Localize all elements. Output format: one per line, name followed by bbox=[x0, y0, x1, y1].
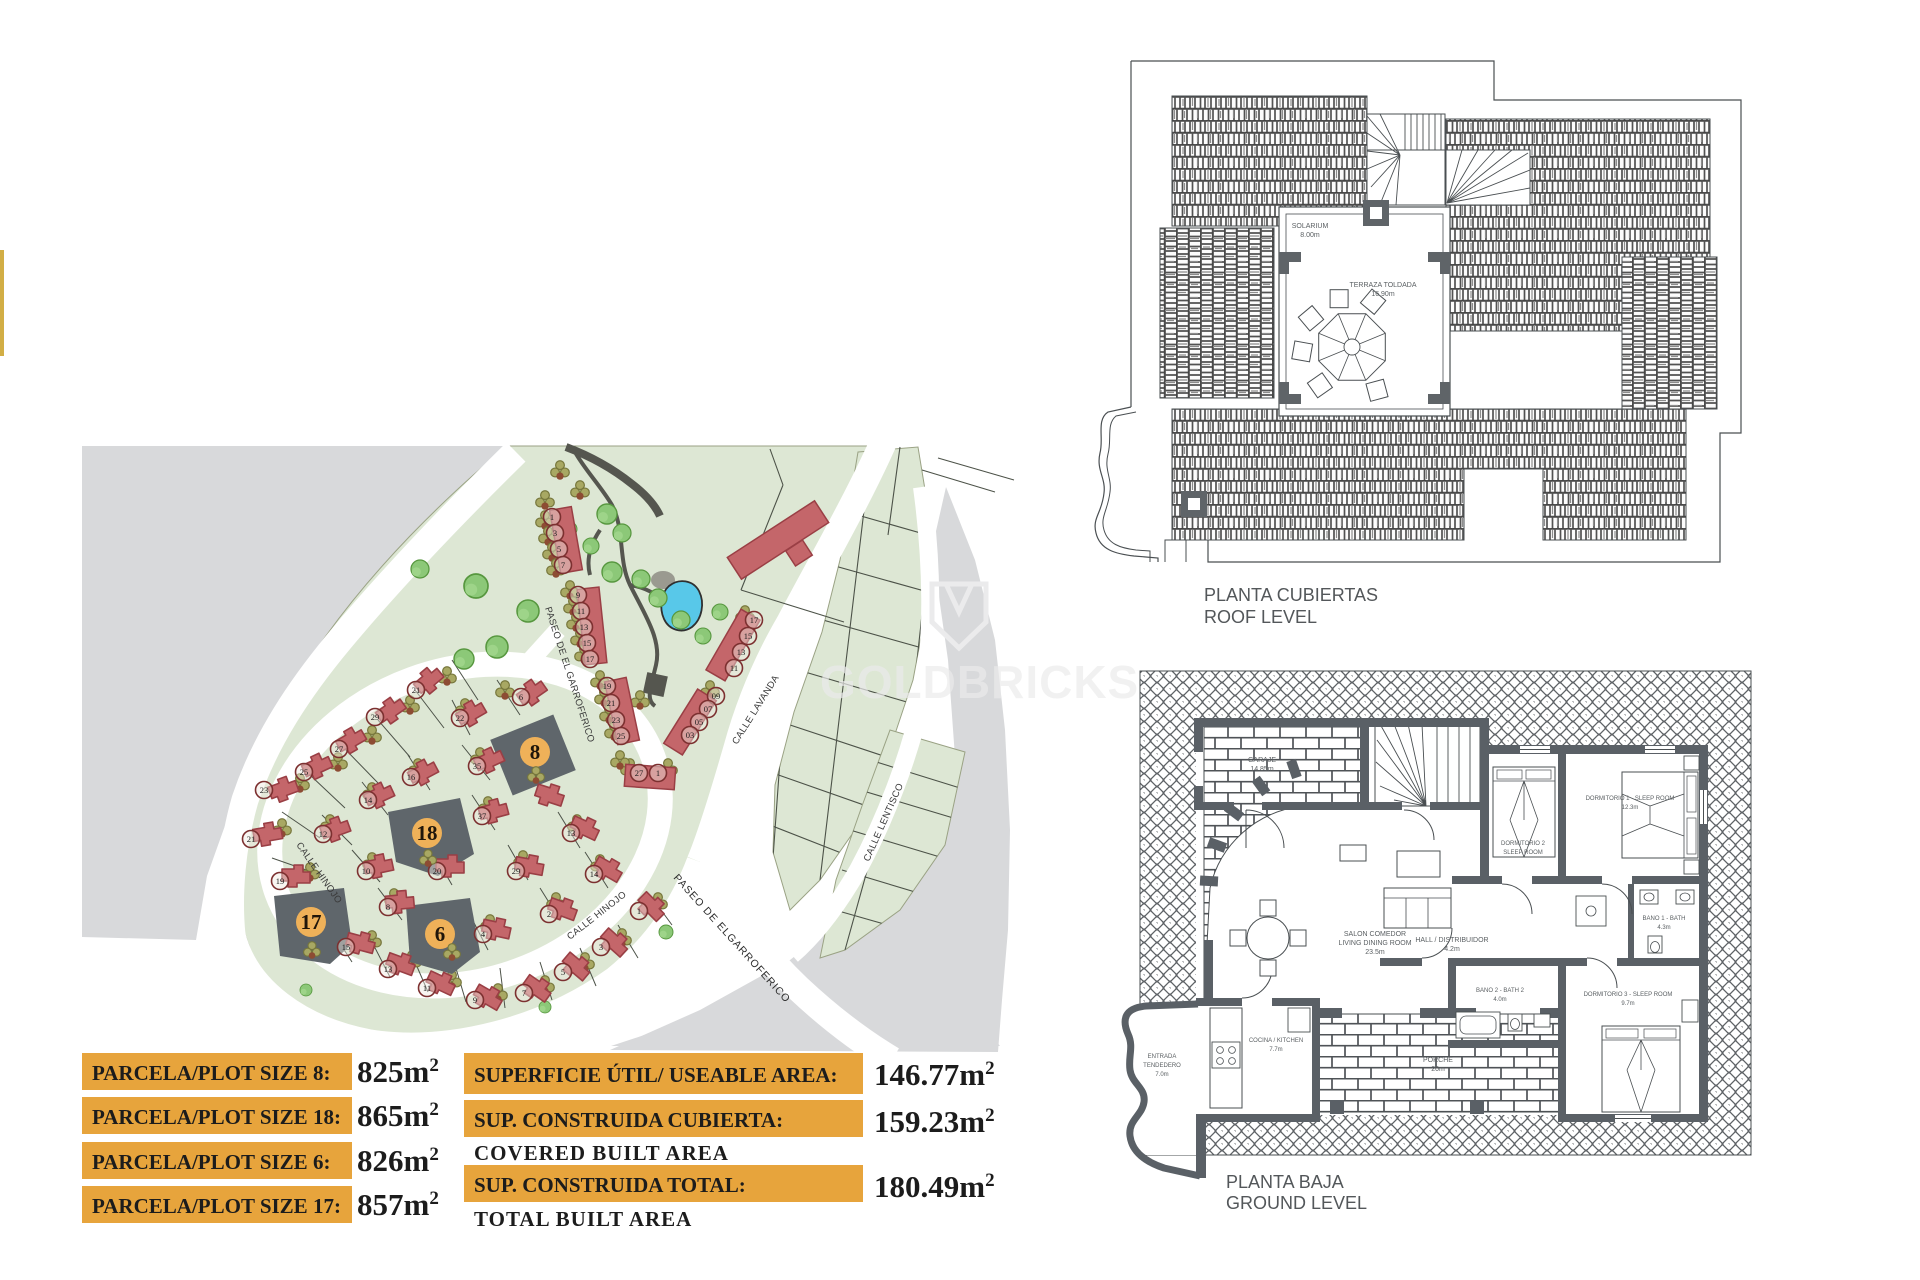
svg-text:3: 3 bbox=[553, 528, 557, 538]
svg-text:PLANTA BAJA: PLANTA BAJA bbox=[1226, 1172, 1344, 1192]
svg-text:5: 5 bbox=[557, 544, 561, 554]
svg-text:14.85m: 14.85m bbox=[1250, 766, 1274, 773]
svg-text:09: 09 bbox=[712, 691, 721, 701]
svg-text:8: 8 bbox=[386, 902, 390, 912]
svg-text:25: 25 bbox=[617, 731, 626, 741]
svg-text:35: 35 bbox=[473, 761, 482, 771]
svg-text:SALON COMEDOR: SALON COMEDOR bbox=[1344, 931, 1406, 938]
svg-text:10: 10 bbox=[362, 866, 371, 876]
svg-text:ROOF LEVEL: ROOF LEVEL bbox=[1204, 607, 1317, 627]
svg-text:11: 11 bbox=[730, 663, 738, 673]
svg-text:GARAJE: GARAJE bbox=[1248, 757, 1276, 764]
svg-text:13: 13 bbox=[580, 622, 589, 632]
svg-text:21: 21 bbox=[607, 698, 616, 708]
svg-text:7: 7 bbox=[522, 988, 526, 998]
svg-text:PARCELA/PLOT SIZE 6:: PARCELA/PLOT SIZE 6: bbox=[92, 1150, 330, 1174]
svg-text:11: 11 bbox=[577, 606, 585, 616]
svg-text:PLANTA CUBIERTAS: PLANTA CUBIERTAS bbox=[1204, 585, 1378, 605]
svg-text:826m2: 826m2 bbox=[357, 1143, 439, 1178]
svg-text:12: 12 bbox=[319, 829, 328, 839]
svg-text:7: 7 bbox=[561, 560, 565, 570]
svg-text:14: 14 bbox=[590, 869, 599, 879]
svg-text:13: 13 bbox=[567, 828, 576, 838]
svg-text:17: 17 bbox=[586, 654, 595, 664]
svg-text:8.00m: 8.00m bbox=[1300, 232, 1320, 239]
svg-text:1: 1 bbox=[637, 906, 641, 916]
svg-text:27: 27 bbox=[635, 768, 644, 778]
svg-text:4.0m: 4.0m bbox=[1493, 997, 1506, 1003]
svg-text:23: 23 bbox=[612, 715, 621, 725]
svg-text:19: 19 bbox=[603, 681, 612, 691]
svg-text:20m: 20m bbox=[1431, 1066, 1445, 1073]
svg-text:22: 22 bbox=[456, 713, 465, 723]
svg-text:37: 37 bbox=[478, 811, 487, 821]
svg-text:180.49m2: 180.49m2 bbox=[874, 1169, 995, 1204]
svg-text:23.5m: 23.5m bbox=[1365, 949, 1385, 956]
svg-text:11: 11 bbox=[423, 983, 431, 993]
svg-text:DORMITORIO 3 - SLEEP ROOM: DORMITORIO 3 - SLEEP ROOM bbox=[1584, 992, 1673, 998]
svg-text:SOLARIUM: SOLARIUM bbox=[1292, 223, 1329, 230]
svg-text:18: 18 bbox=[417, 821, 438, 845]
svg-text:TENDEDERO: TENDEDERO bbox=[1143, 1063, 1181, 1069]
svg-text:29: 29 bbox=[512, 866, 521, 876]
svg-text:8: 8 bbox=[530, 740, 541, 764]
svg-text:20: 20 bbox=[433, 866, 442, 876]
svg-text:25: 25 bbox=[300, 767, 309, 777]
svg-text:857m2: 857m2 bbox=[357, 1187, 439, 1222]
svg-text:159.23m2: 159.23m2 bbox=[874, 1104, 995, 1139]
svg-text:14: 14 bbox=[364, 795, 373, 805]
svg-text:12.3m: 12.3m bbox=[1622, 805, 1639, 811]
svg-text:ENTRADA: ENTRADA bbox=[1148, 1054, 1177, 1060]
svg-text:1: 1 bbox=[550, 512, 554, 522]
svg-text:15: 15 bbox=[583, 638, 592, 648]
svg-text:7.0m: 7.0m bbox=[1155, 1072, 1168, 1078]
svg-text:6: 6 bbox=[519, 692, 523, 702]
svg-text:16: 16 bbox=[407, 772, 416, 782]
svg-text:LIVING DINING ROOM: LIVING DINING ROOM bbox=[1338, 940, 1411, 947]
svg-text:865m2: 865m2 bbox=[357, 1098, 439, 1133]
svg-text:13: 13 bbox=[737, 647, 746, 657]
svg-text:DORMITORIO 1 - SLEEP ROOM: DORMITORIO 1 - SLEEP ROOM bbox=[1586, 796, 1675, 802]
svg-text:13: 13 bbox=[384, 964, 393, 974]
svg-text:9: 9 bbox=[576, 590, 580, 600]
svg-text:4.3m: 4.3m bbox=[1657, 925, 1670, 931]
svg-text:17: 17 bbox=[750, 615, 759, 625]
svg-text:GOLDBRICKS: GOLDBRICKS bbox=[820, 656, 1139, 708]
svg-text:SUP. CONSTRUIDA TOTAL:: SUP. CONSTRUIDA TOTAL: bbox=[474, 1173, 746, 1197]
svg-text:146.77m2: 146.77m2 bbox=[874, 1057, 995, 1092]
svg-text:BANO 2 - BATH 2: BANO 2 - BATH 2 bbox=[1476, 988, 1525, 994]
svg-text:1: 1 bbox=[656, 768, 660, 778]
svg-text:27: 27 bbox=[335, 744, 344, 754]
svg-text:9.7m: 9.7m bbox=[1621, 1001, 1634, 1007]
svg-text:GROUND LEVEL: GROUND LEVEL bbox=[1226, 1193, 1367, 1213]
svg-text:15: 15 bbox=[342, 942, 351, 952]
svg-text:15: 15 bbox=[744, 631, 753, 641]
svg-text:PARCELA/PLOT SIZE 18:: PARCELA/PLOT SIZE 18: bbox=[92, 1105, 341, 1129]
svg-text:19: 19 bbox=[276, 876, 285, 886]
svg-text:SLEEP ROOM: SLEEP ROOM bbox=[1503, 850, 1543, 856]
svg-text:SUP. CONSTRUIDA CUBIERTA:: SUP. CONSTRUIDA CUBIERTA: bbox=[474, 1108, 783, 1132]
svg-text:5: 5 bbox=[561, 967, 565, 977]
svg-text:3: 3 bbox=[599, 942, 603, 952]
svg-text:SUPERFICIE ÚTIL/ USEABLE AREA:: SUPERFICIE ÚTIL/ USEABLE AREA: bbox=[474, 1063, 838, 1087]
svg-text:PARCELA/PLOT SIZE 17:: PARCELA/PLOT SIZE 17: bbox=[92, 1194, 341, 1218]
svg-text:BANO 1 - BATH: BANO 1 - BATH bbox=[1643, 916, 1686, 922]
svg-text:6: 6 bbox=[435, 922, 446, 946]
svg-text:05: 05 bbox=[695, 717, 704, 727]
svg-text:21: 21 bbox=[247, 834, 256, 844]
svg-text:DORMITORIO 2: DORMITORIO 2 bbox=[1501, 841, 1546, 847]
svg-text:COCINA / KITCHEN: COCINA / KITCHEN bbox=[1249, 1038, 1303, 1044]
svg-text:03: 03 bbox=[686, 730, 695, 740]
svg-text:COVERED BUILT AREA: COVERED BUILT AREA bbox=[474, 1141, 729, 1165]
svg-text:16.90m: 16.90m bbox=[1371, 291, 1395, 298]
svg-text:PARCELA/PLOT SIZE 8:: PARCELA/PLOT SIZE 8: bbox=[92, 1061, 330, 1085]
svg-text:9: 9 bbox=[473, 995, 477, 1005]
svg-text:825m2: 825m2 bbox=[357, 1054, 439, 1089]
svg-text:4.2m: 4.2m bbox=[1444, 946, 1460, 953]
svg-text:23: 23 bbox=[260, 785, 269, 795]
svg-text:PORCHE: PORCHE bbox=[1423, 1057, 1453, 1064]
svg-text:2: 2 bbox=[547, 909, 551, 919]
svg-text:7.7m: 7.7m bbox=[1269, 1047, 1282, 1053]
svg-text:TERRAZA TOLDADA: TERRAZA TOLDADA bbox=[1349, 282, 1416, 289]
svg-text:TOTAL BUILT AREA: TOTAL BUILT AREA bbox=[474, 1207, 692, 1231]
svg-text:21: 21 bbox=[412, 685, 421, 695]
svg-text:29: 29 bbox=[371, 712, 380, 722]
svg-text:17: 17 bbox=[301, 910, 322, 934]
svg-text:HALL / DISTRIBUIDOR: HALL / DISTRIBUIDOR bbox=[1415, 937, 1488, 944]
svg-text:07: 07 bbox=[704, 704, 713, 714]
